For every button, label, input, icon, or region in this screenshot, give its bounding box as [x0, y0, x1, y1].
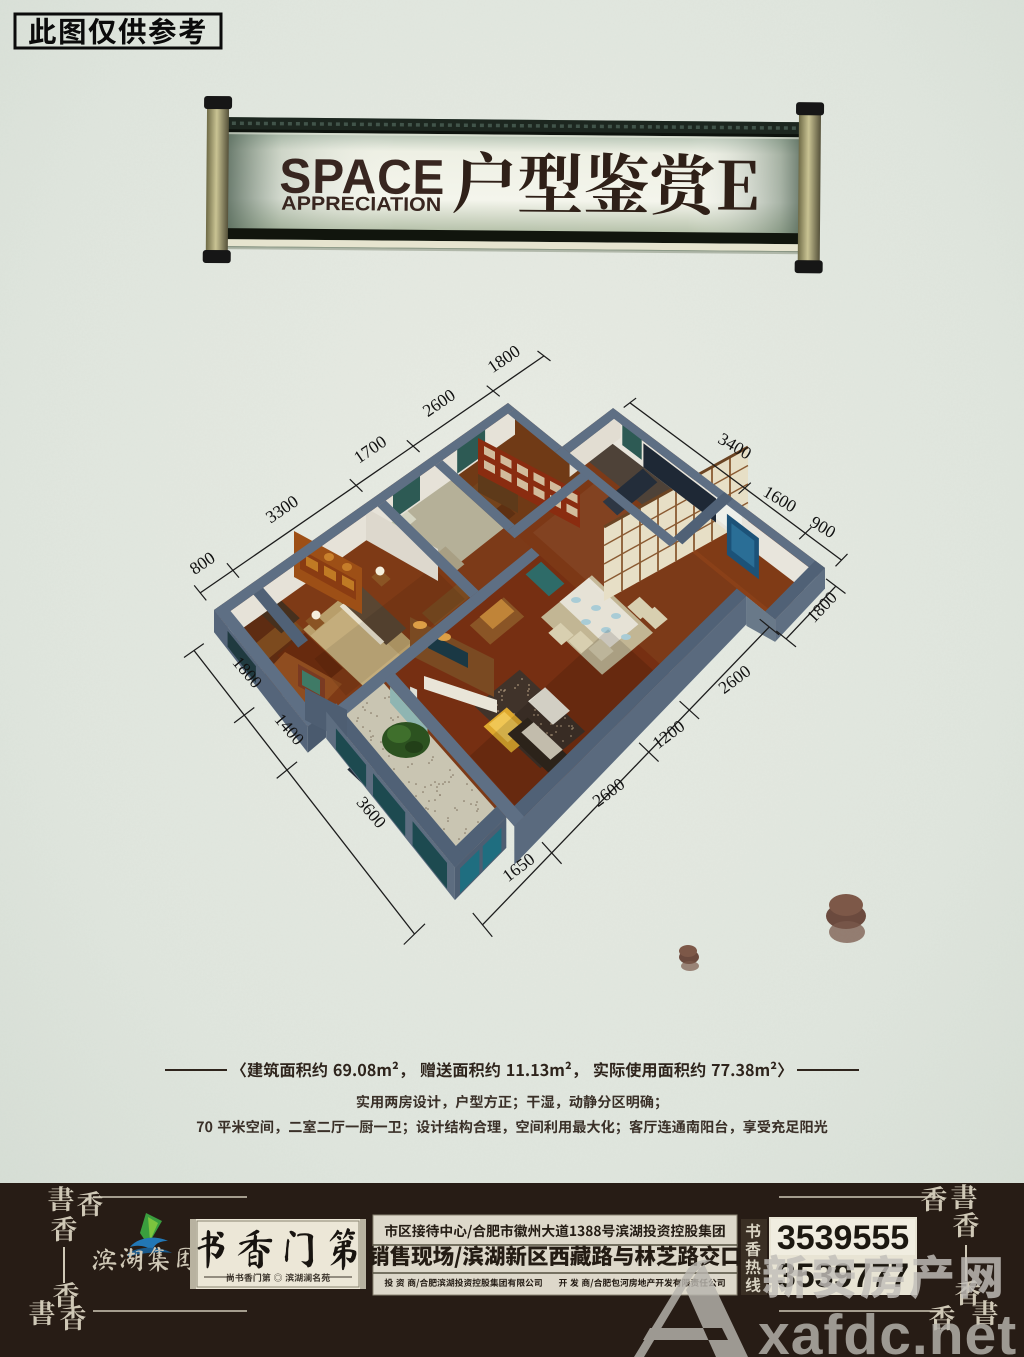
- svg-text:xafdc.net: xafdc.net: [758, 1303, 1017, 1357]
- svg-text:APPRECIATION: APPRECIATION: [281, 193, 441, 216]
